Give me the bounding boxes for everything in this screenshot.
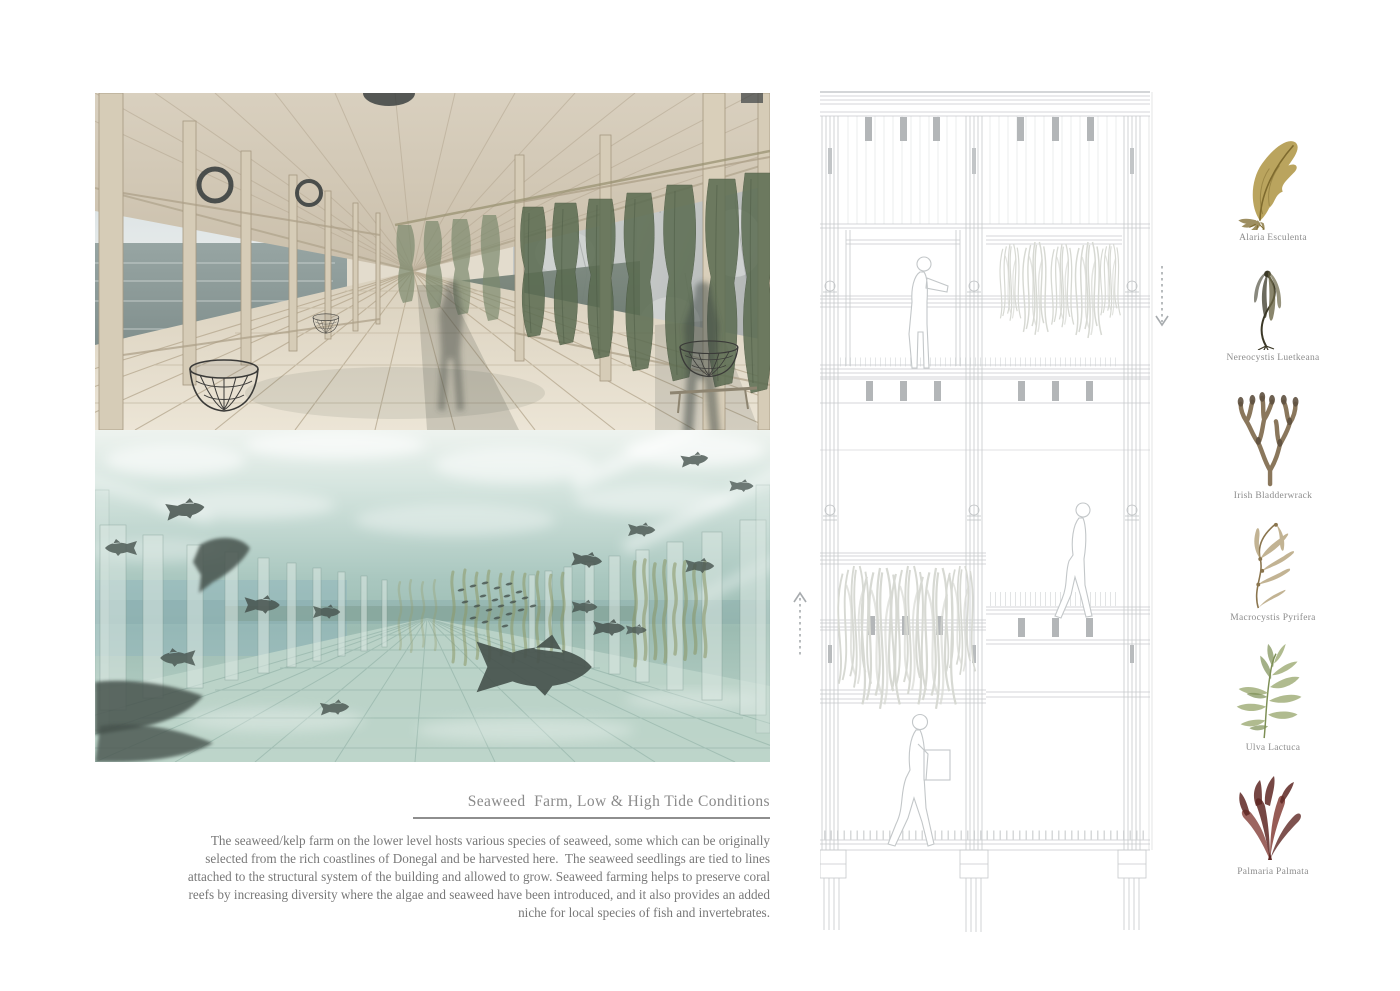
species-item: Nereocystis Luetkeana (1193, 256, 1353, 363)
human-figures (888, 257, 1092, 846)
species-label: Palmaria Palmata (1193, 867, 1353, 877)
macrocystis-pyrifera-illustration (1218, 514, 1328, 610)
nereocystis-luetkeana-illustration (1218, 256, 1328, 350)
intro-line: selected from the rich coastlines of Don… (90, 850, 770, 868)
interior-render-art (95, 93, 770, 430)
species-label: Alaria Esculenta (1193, 233, 1353, 243)
irish-bladderwrack-illustration (1218, 390, 1328, 488)
section-structure (820, 92, 1152, 932)
human-figure-standing (909, 257, 948, 368)
species-label: Ulva Lactuca (1193, 743, 1353, 753)
underwater-render-art (95, 430, 770, 762)
presentation-board: Seaweed Farm, Low & High Tide Conditions… (0, 0, 1400, 991)
intro-line: reefs by increasing diversity where the … (90, 886, 770, 904)
species-label: Macrocystis Pyrifera (1193, 613, 1353, 623)
section-drawing-art (820, 90, 1153, 942)
interior-render-image (95, 93, 770, 430)
palmaria-palmata-illustration (1218, 764, 1328, 864)
intro-line: The seaweed/kelp farm on the lower level… (90, 832, 770, 850)
species-item: Irish Bladderwrack (1193, 390, 1353, 501)
species-item: Alaria Esculenta (1193, 132, 1353, 243)
underwater-render-image (95, 430, 770, 762)
page: { "board": { "title": "Seaweed Farm, Low… (0, 0, 1400, 991)
intro-line: attached to the structural system of the… (90, 868, 770, 886)
intro-line: niche for local species of fish and inve… (90, 904, 770, 922)
species-item: Ulva Lactuca (1193, 636, 1353, 753)
dashed-arrow-down-icon (1154, 266, 1170, 330)
species-label: Nereocystis Luetkeana (1193, 353, 1353, 363)
alaria-esculenta-illustration (1218, 132, 1328, 230)
species-label: Irish Bladderwrack (1193, 491, 1353, 501)
dashed-arrow-up-icon (792, 590, 808, 660)
intro-paragraph: The seaweed/kelp farm on the lower level… (90, 832, 770, 922)
ulva-lactuca-illustration (1218, 636, 1328, 740)
human-figure-carrying (888, 715, 950, 847)
species-item: Palmaria Palmata (1193, 764, 1353, 877)
board-title: Seaweed Farm, Low & High Tide Conditions (250, 793, 770, 811)
section-joists (828, 117, 1134, 663)
section-hanging-seaweed (838, 242, 1120, 709)
title-rule (413, 817, 770, 819)
species-item: Macrocystis Pyrifera (1193, 514, 1353, 623)
section-drawing (820, 90, 1153, 942)
